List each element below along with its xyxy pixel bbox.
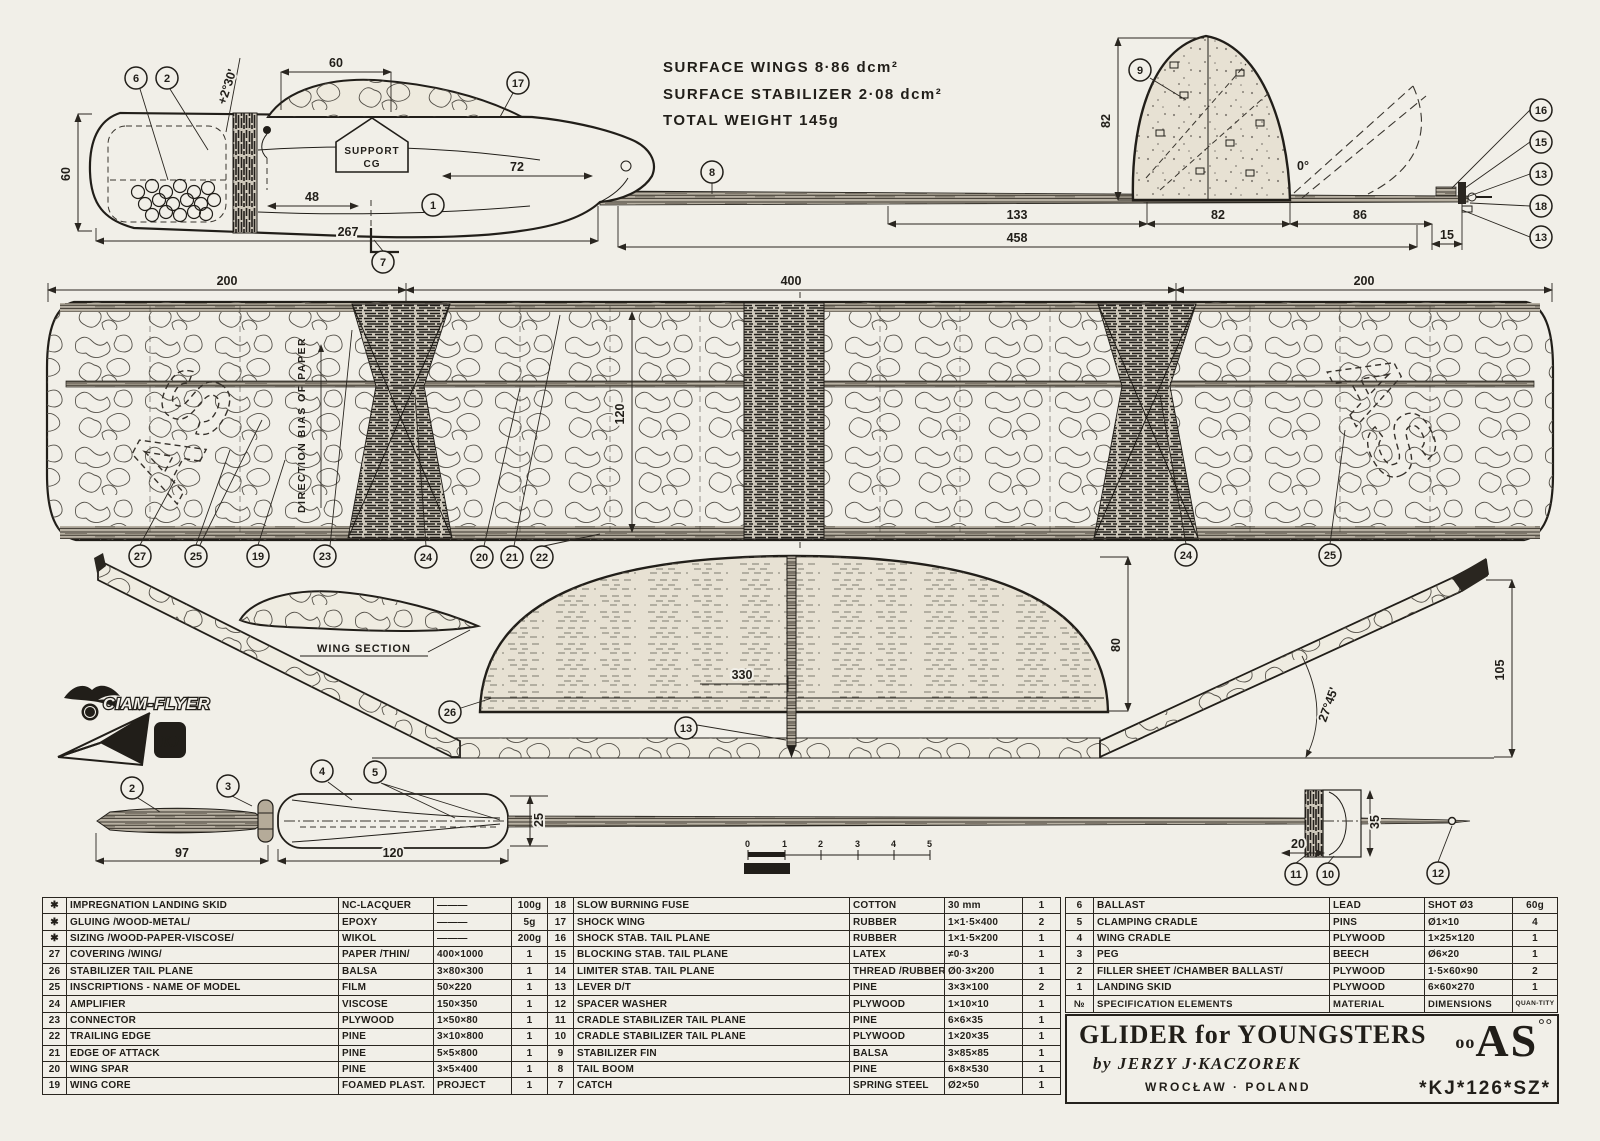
stabilizer-plan-view	[480, 556, 1108, 758]
dimension-label: 120	[383, 846, 404, 860]
callout-23: 23	[314, 545, 336, 567]
table-row: 19WING COREFOAMED PLAST.PROJECT1	[43, 1078, 548, 1094]
svg-text:21: 21	[506, 552, 518, 564]
stab-cradle-bottom	[1305, 790, 1361, 857]
svg-text:3: 3	[855, 839, 861, 849]
ciam-flyer-logo: CIAM-FLYER KJ	[58, 686, 210, 765]
table-row: 20WING SPARPINE3×5×4001	[43, 1061, 548, 1077]
dimension-label: 35	[1368, 815, 1382, 829]
dimension-label: 133	[1007, 208, 1028, 222]
svg-text:23: 23	[319, 551, 331, 563]
dimension-label: 15	[1440, 228, 1454, 242]
callout-19: 19	[247, 545, 269, 567]
table-row: 25INSCRIPTIONS - NAME OF MODELFILM50×220…	[43, 979, 548, 995]
blueprint-drawing: AS AS DIRECTION BIAS OF PAPER	[0, 0, 1600, 890]
tail-boom-bottom	[508, 816, 1305, 827]
plan-title: GLIDER for YOUNGSTERS	[1079, 1020, 1427, 1050]
plan-code: *KJ*126*SZ*	[1419, 1078, 1551, 1100]
callout-25: 25	[1319, 544, 1341, 566]
callout-13: 13	[1530, 226, 1552, 248]
wing-plan-view: AS AS DIRECTION BIAS OF PAPER	[47, 292, 1553, 550]
callout-11: 11	[1285, 863, 1307, 885]
svg-text:24: 24	[420, 552, 433, 564]
table-row: 24AMPLIFIERVISCOSE150×3501	[43, 996, 548, 1012]
table-row: 14LIMITER STAB. TAIL PLANETHREAD /RUBBER…	[548, 963, 1061, 979]
callout-12: 12	[1427, 862, 1449, 884]
svg-text:12: 12	[1432, 868, 1444, 880]
callout-18: 18	[1530, 195, 1552, 217]
callout-15: 15	[1530, 131, 1552, 153]
svg-text:15: 15	[1535, 137, 1547, 149]
as-logo: ooAS°°	[1455, 1014, 1553, 1067]
svg-text:1: 1	[430, 200, 436, 212]
svg-text:0: 0	[745, 839, 751, 849]
dimension-label: 60	[329, 56, 343, 70]
dimension-label: 0°	[1297, 159, 1309, 173]
table-row: 6BALLASTLEADSHOT Ø360g	[1066, 898, 1558, 914]
table-row: 21EDGE OF ATTACKPINE5×5×8001	[43, 1045, 548, 1061]
table-row: 11CRADLE STABILIZER TAIL PLANEPINE6×6×35…	[548, 1012, 1061, 1028]
dimension-label: 330	[732, 668, 753, 682]
svg-text:13: 13	[1535, 232, 1547, 244]
dimension-label: 25	[532, 813, 546, 827]
dimension-label: 97	[175, 846, 189, 860]
table-row: 26STABILIZER TAIL PLANEBALSA3×80×3001	[43, 963, 548, 979]
svg-text:20: 20	[476, 552, 488, 564]
callout-7: 7	[372, 251, 394, 273]
callout-16: 16	[1530, 99, 1552, 121]
scale-bar: 0 1 2 3 4 5 MODELL	[744, 839, 933, 874]
wing-section-view: WING SECTION	[240, 591, 478, 656]
svg-text:18: 18	[1535, 201, 1547, 213]
wing-center-joint	[744, 303, 824, 539]
tow-hook	[263, 126, 271, 134]
callout-13: 13	[675, 717, 697, 739]
svg-text:CG: CG	[364, 159, 381, 170]
svg-text:11: 11	[1290, 869, 1302, 881]
table-row: 15BLOCKING STAB. TAIL PLANELATEX≠0·31	[548, 947, 1061, 963]
table-row: ✱GLUING /WOOD-METAL/EPOXY———5g	[43, 914, 548, 930]
table-row: 27COVERING /WING/PAPER /THIN/400×10001	[43, 947, 548, 963]
table-row: 9STABILIZER FINBALSA3×85×851	[548, 1045, 1061, 1061]
table-header-row: №SPECIFICATION ELEMENTSMATERIALDIMENSION…	[1066, 996, 1558, 1012]
table-row: 3PEGBEECHØ6×201	[1066, 947, 1558, 963]
table-row: 7CATCHSPRING STEELØ2×501	[548, 1078, 1061, 1094]
dimension-label: 80	[1109, 638, 1123, 652]
dimension-label: 86	[1353, 208, 1367, 222]
svg-text:13: 13	[1535, 169, 1547, 181]
dimension-label: 82	[1099, 114, 1113, 128]
dimension-label: +2°30'	[215, 67, 239, 106]
svg-text:3: 3	[225, 781, 231, 793]
table-row: 12SPACER WASHERPLYWOOD1×10×101	[548, 996, 1061, 1012]
svg-text:27: 27	[134, 551, 146, 563]
table-row: 10CRADLE STABILIZER TAIL PLANEPLYWOOD1×2…	[548, 1029, 1061, 1045]
table-row: 5CLAMPING CRADLEPINSØ1×104	[1066, 914, 1558, 930]
svg-text:6: 6	[133, 73, 139, 85]
table-row: ✱SIZING /WOOD-PAPER-VISCOSE/WIKOL———200g	[43, 930, 548, 946]
dimension-label: 267	[338, 225, 359, 239]
dimension-label: 200	[217, 274, 238, 288]
spec-text: SURFACE WINGS 8·86 dcm² SURFACE STABILIZ…	[663, 59, 942, 129]
svg-text:TOTAL WEIGHT 145g: TOTAL WEIGHT 145g	[663, 112, 839, 129]
callout-17: 17	[507, 72, 529, 94]
parts-table-left: ✱IMPREGNATION LANDING SKIDNC-LACQUER———1…	[42, 897, 548, 1095]
svg-text:5: 5	[927, 839, 933, 849]
callout-21: 21	[501, 546, 523, 568]
callout-6: 6	[125, 67, 147, 89]
callout-24: 24	[1175, 544, 1197, 566]
svg-text:8: 8	[709, 167, 715, 179]
dimension-label: 458	[1007, 231, 1028, 245]
svg-text:2: 2	[818, 839, 824, 849]
svg-text:10: 10	[1322, 869, 1334, 881]
callout-25: 25	[185, 545, 207, 567]
scale-label: MODELL	[752, 867, 782, 874]
dimension-label: 27°45'	[1316, 685, 1341, 723]
callout-5: 5	[364, 761, 386, 783]
table-row: 22TRAILING EDGEPINE3×10×8001	[43, 1029, 548, 1045]
svg-text:17: 17	[512, 78, 524, 90]
svg-text:26: 26	[444, 707, 456, 719]
tail-boom-side	[600, 191, 1468, 205]
callout-2: 2	[156, 67, 178, 89]
stabilizer-spar	[787, 556, 796, 746]
svg-text:SUPPORT: SUPPORT	[344, 146, 399, 157]
table-row: 2FILLER SHEET /CHAMBER BALLAST/PLYWOOD1·…	[1066, 963, 1558, 979]
callout-26: 26	[439, 701, 461, 723]
svg-text:SURFACE WINGS 8·86 dcm²: SURFACE WINGS 8·86 dcm²	[663, 59, 898, 76]
dimension-label: 200	[1354, 274, 1375, 288]
table-row: 4WING CRADLEPLYWOOD1×25×1201	[1066, 930, 1558, 946]
svg-text:9: 9	[1137, 65, 1143, 77]
callout-24: 24	[415, 546, 437, 568]
table-row: 17SHOCK WINGRUBBER1×1·5×4002	[548, 914, 1061, 930]
dimension-label: 48	[305, 190, 319, 204]
direction-bias-label: DIRECTION BIAS OF PAPER	[296, 337, 308, 513]
svg-text:13: 13	[680, 723, 692, 735]
paper-plane-icon	[58, 713, 150, 765]
svg-text:2: 2	[164, 73, 170, 85]
table-row: 8TAIL BOOMPINE6×8×5301	[548, 1061, 1061, 1077]
callout-4: 4	[311, 760, 333, 782]
dimension-label: 20	[1291, 837, 1305, 851]
wing-section-label: WING SECTION	[317, 643, 411, 655]
fuselage-bulkhead	[233, 113, 257, 233]
table-row: ✱IMPREGNATION LANDING SKIDNC-LACQUER———1…	[43, 898, 548, 914]
dimension-label: 72	[510, 160, 524, 174]
fin-side-view	[1133, 36, 1492, 212]
catch-bottom	[1449, 818, 1456, 825]
callout-9: 9	[1129, 59, 1151, 81]
parts-table-right: 6BALLASTLEADSHOT Ø360g5CLAMPING CRADLEPI…	[1065, 897, 1558, 1013]
callout-22: 22	[531, 546, 553, 568]
svg-text:25: 25	[1324, 550, 1336, 562]
svg-text:KJ: KJ	[159, 732, 180, 751]
plan-author: by JERZY J·KACZOREK	[1093, 1054, 1301, 1074]
callout-1: 1	[422, 194, 444, 216]
table-row: 1LANDING SKIDPLYWOOD6×60×2701	[1066, 979, 1558, 995]
svg-text:25: 25	[190, 551, 202, 563]
svg-text:5: 5	[372, 767, 378, 779]
dimension-label: 120	[613, 404, 627, 425]
svg-text:16: 16	[1535, 105, 1547, 117]
parts-table-middle: 18SLOW BURNING FUSECOTTON30 mm117SHOCK W…	[547, 897, 1061, 1095]
callout-27: 27	[129, 545, 151, 567]
svg-text:4: 4	[319, 766, 326, 778]
svg-text:22: 22	[536, 552, 548, 564]
title-block: GLIDER for YOUNGSTERS by JERZY J·KACZORE…	[1065, 1014, 1559, 1104]
svg-text:4: 4	[891, 839, 897, 849]
svg-text:7: 7	[380, 257, 386, 269]
callout-20: 20	[471, 546, 493, 568]
svg-text:1: 1	[782, 839, 788, 849]
dimension-label: 82	[1211, 208, 1225, 222]
plan-place: WROCŁAW · POLAND	[1145, 1080, 1311, 1094]
table-row: 13LEVER D/TPINE3×3×1002	[548, 979, 1061, 995]
dimension-label: 60	[59, 167, 73, 181]
svg-text:19: 19	[252, 551, 264, 563]
dimension-label: 105	[1493, 660, 1507, 681]
table-row: 16SHOCK STAB. TAIL PLANERUBBER1×1·5×2001	[548, 930, 1061, 946]
peg-bottom	[258, 800, 273, 842]
callout-8: 8	[701, 161, 723, 183]
callout-3: 3	[217, 775, 239, 797]
dimension-label: 400	[781, 274, 802, 288]
svg-text:24: 24	[1180, 550, 1193, 562]
ciam-flyer-label: CIAM-FLYER	[103, 696, 210, 713]
callout-13: 13	[1530, 163, 1552, 185]
callout-2: 2	[121, 777, 143, 799]
table-row: 18SLOW BURNING FUSECOTTON30 mm1	[548, 898, 1061, 914]
front-skid-bottom	[97, 808, 266, 833]
svg-text:SURFACE STABILIZER 2·08 dcm²: SURFACE STABILIZER 2·08 dcm²	[663, 86, 942, 103]
svg-text:2: 2	[129, 783, 135, 795]
table-row: 23CONNECTORPLYWOOD1×50×801	[43, 1012, 548, 1028]
kj-stamp: KJ	[154, 722, 186, 758]
callout-10: 10	[1317, 863, 1339, 885]
